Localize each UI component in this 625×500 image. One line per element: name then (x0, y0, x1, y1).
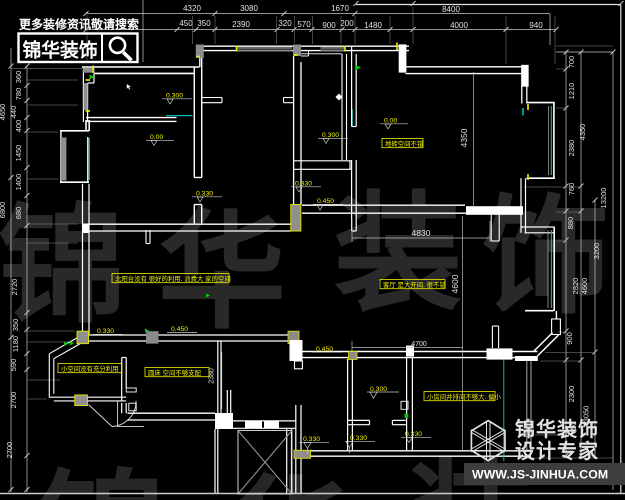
svg-text:0.00: 0.00 (384, 118, 397, 125)
svg-text:2380: 2380 (209, 368, 216, 384)
svg-text:350: 350 (197, 19, 211, 28)
svg-text:设计专家: 设计专家 (515, 439, 599, 463)
svg-text:1400: 1400 (14, 174, 23, 191)
svg-text:880: 880 (566, 217, 575, 230)
svg-text:4600: 4600 (580, 278, 589, 295)
svg-text:锦华装饰: 锦华装饰 (23, 39, 98, 61)
svg-text:1480: 1480 (364, 21, 382, 30)
svg-text:1210: 1210 (567, 83, 576, 100)
svg-text:200: 200 (340, 19, 354, 28)
svg-text:2700: 2700 (9, 392, 18, 409)
svg-text:0.300: 0.300 (166, 93, 183, 100)
svg-text:地砖空间不错: 地砖空间不错 (385, 139, 424, 148)
svg-text:1450: 1450 (14, 145, 23, 162)
svg-text:6800: 6800 (0, 202, 7, 219)
svg-text:更多装修资讯敬请搜索: 更多装修资讯敬请搜索 (19, 17, 139, 32)
svg-text:1180: 1180 (11, 336, 20, 352)
svg-text:WWW.JS-JINHUA.COM: WWW.JS-JINHUA.COM (472, 468, 608, 482)
svg-text:400: 400 (14, 120, 23, 133)
svg-text:北阳台没有 很好的利用. 浪费大 家的空间: 北阳台没有 很好的利用. 浪费大 家的空间 (115, 274, 231, 283)
svg-text:装: 装 (334, 183, 462, 326)
svg-text:2820: 2820 (571, 278, 580, 295)
svg-text:8400: 8400 (442, 5, 460, 14)
svg-text:13200: 13200 (599, 188, 608, 209)
svg-text:900: 900 (322, 21, 336, 30)
svg-text:900: 900 (565, 332, 574, 345)
svg-text:3080: 3080 (240, 4, 258, 13)
svg-text:1670: 1670 (331, 4, 349, 13)
svg-text:客厅 是大开间. 很不错: 客厅 是大开间. 很不错 (383, 280, 446, 289)
svg-text:2700: 2700 (5, 442, 14, 459)
svg-text:590: 590 (9, 359, 18, 372)
svg-text:450: 450 (179, 19, 193, 28)
svg-text:4350: 4350 (459, 128, 469, 147)
svg-text:3200: 3200 (592, 243, 601, 260)
svg-text:4350: 4350 (578, 124, 587, 141)
svg-text:华: 华 (158, 201, 286, 344)
svg-text:小房间并排间不够大. 偏小: 小房间并排间不够大. 偏小 (427, 392, 501, 401)
svg-text:圆床 空间不够支配: 圆床 空间不够支配 (148, 368, 202, 377)
svg-text:350: 350 (11, 319, 20, 332)
svg-text:440: 440 (9, 106, 18, 119)
svg-text:2390: 2390 (232, 20, 250, 29)
svg-text:940: 940 (529, 21, 543, 30)
svg-text:760: 760 (567, 183, 576, 196)
svg-text:2720: 2720 (10, 279, 19, 296)
svg-text:570: 570 (297, 20, 311, 29)
svg-text:4650: 4650 (0, 104, 7, 121)
svg-text:4320: 4320 (183, 4, 201, 13)
svg-text:锦华装饰: 锦华装饰 (515, 417, 599, 441)
svg-text:780: 780 (14, 88, 23, 101)
svg-text:2300: 2300 (567, 386, 576, 403)
svg-text:4700: 4700 (411, 341, 427, 348)
svg-text:2380: 2380 (567, 140, 576, 157)
svg-text:680: 680 (14, 207, 23, 220)
svg-text:360: 360 (14, 71, 23, 84)
svg-text:4000: 4000 (450, 21, 468, 30)
svg-text:小空间没有充分利用: 小空间没有充分利用 (61, 364, 119, 373)
svg-text:4830: 4830 (412, 228, 431, 238)
svg-text:320: 320 (278, 19, 292, 28)
svg-text:700: 700 (567, 56, 576, 69)
svg-text:4600: 4600 (450, 274, 460, 293)
